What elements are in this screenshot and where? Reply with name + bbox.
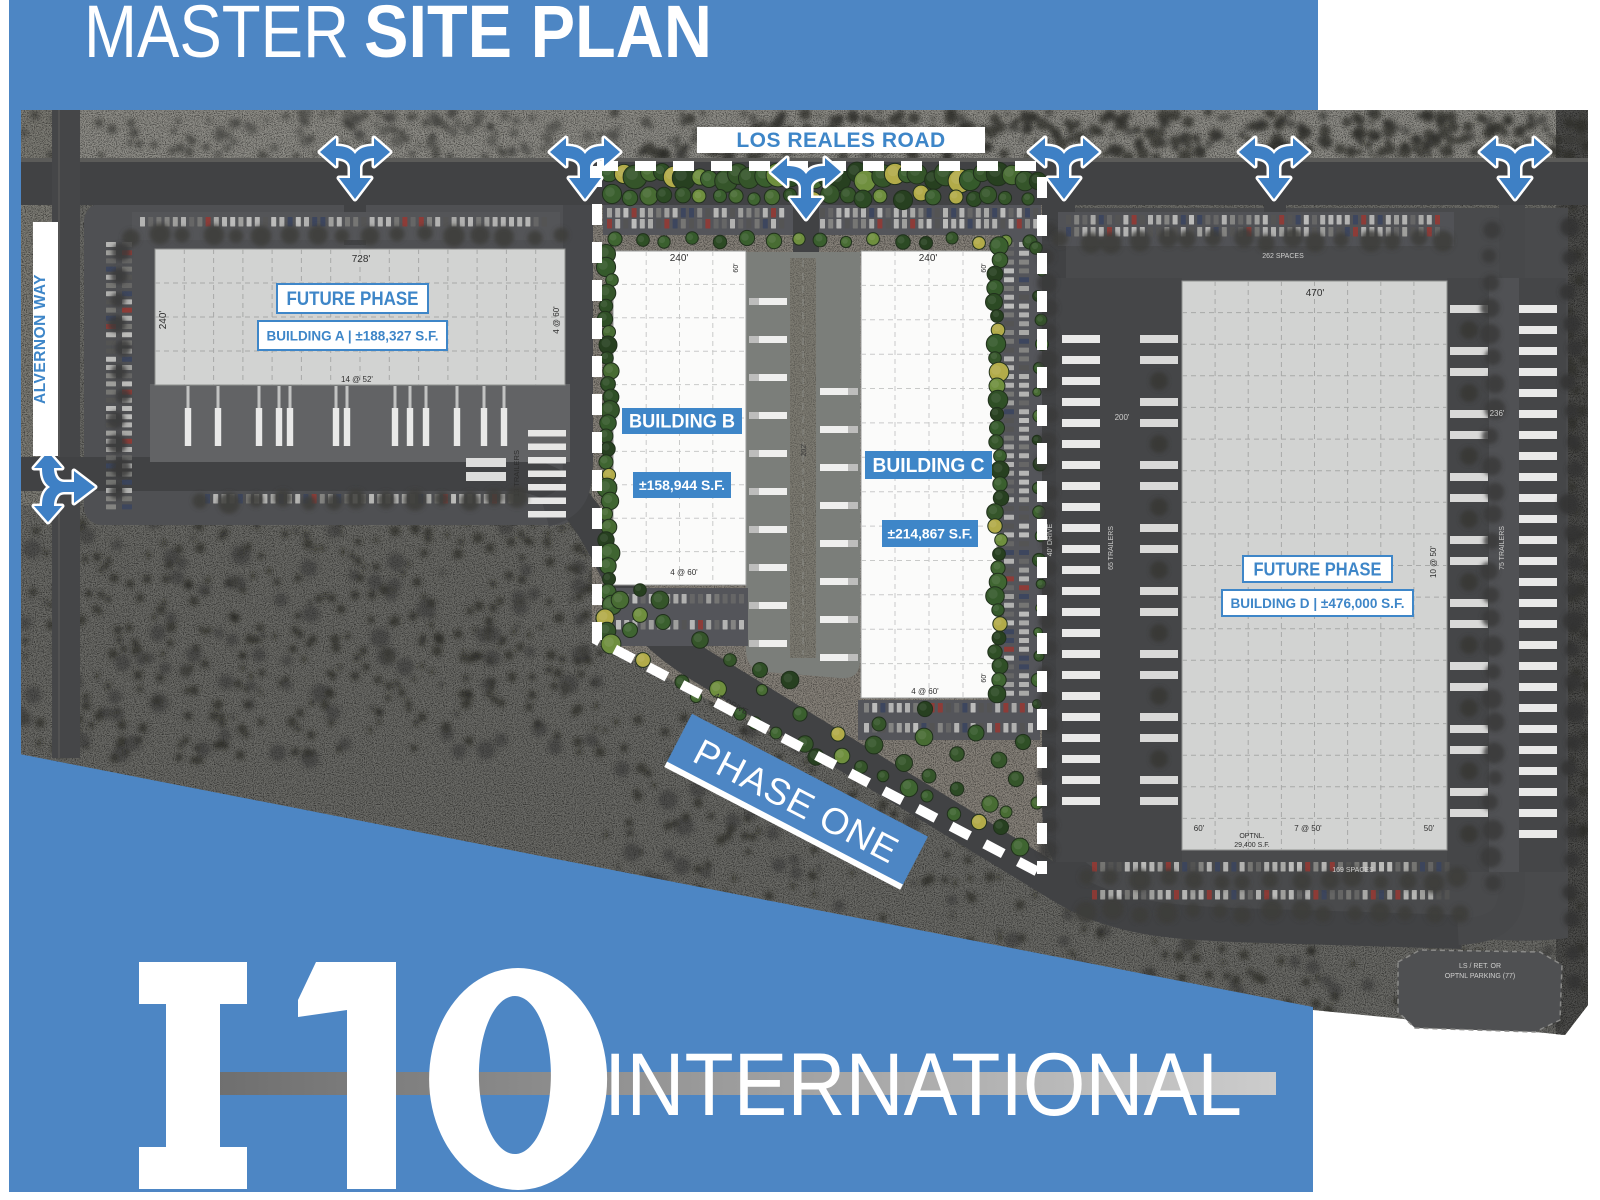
- svg-text:LS / RET. OR: LS / RET. OR: [1459, 963, 1501, 970]
- svg-text:65 TRAILERS: 65 TRAILERS: [1108, 526, 1115, 570]
- svg-text:10 @ 50': 10 @ 50': [1429, 546, 1438, 578]
- svg-text:LOS REALES ROAD: LOS REALES ROAD: [736, 129, 945, 152]
- svg-text:OPTNL PARKING (77): OPTNL PARKING (77): [1445, 973, 1515, 980]
- svg-text:±158,944 S.F.: ±158,944 S.F.: [639, 477, 725, 493]
- svg-text:240': 240': [919, 253, 938, 264]
- svg-text:INTERNATIONAL: INTERNATIONAL: [604, 1034, 1242, 1134]
- svg-text:SITE PLAN: SITE PLAN: [364, 0, 712, 73]
- svg-text:470': 470': [1306, 288, 1325, 299]
- svg-text:60': 60': [981, 673, 988, 682]
- svg-text:14 @ 52': 14 @ 52': [341, 375, 373, 384]
- svg-text:FUTURE PHASE: FUTURE PHASE: [287, 289, 419, 310]
- svg-text:240': 240': [158, 311, 169, 330]
- svg-text:200': 200': [1115, 413, 1130, 422]
- svg-text:BUILDING C: BUILDING C: [873, 455, 985, 477]
- svg-text:262 SPACES: 262 SPACES: [1262, 253, 1304, 260]
- svg-text:60': 60': [1194, 824, 1205, 833]
- svg-text:202': 202': [801, 443, 808, 456]
- svg-text:FUTURE PHASE: FUTURE PHASE: [1254, 559, 1382, 579]
- svg-text:60': 60': [981, 263, 988, 272]
- svg-text:50': 50': [1424, 824, 1435, 833]
- svg-text:40' DRIVE: 40' DRIVE: [1047, 523, 1054, 556]
- svg-text:240': 240': [670, 253, 689, 264]
- svg-text:60': 60': [733, 263, 740, 272]
- svg-text:4 @ 60': 4 @ 60': [552, 306, 561, 334]
- svg-text:MASTER: MASTER: [84, 0, 349, 73]
- svg-text:BUILDING A | ±188,327 S.F.: BUILDING A | ±188,327 S.F.: [267, 327, 439, 343]
- svg-text:4 @ 60': 4 @ 60': [670, 568, 698, 577]
- svg-text:±214,867 S.F.: ±214,867 S.F.: [888, 525, 973, 541]
- svg-text:BUILDING D | ±476,000 S.F.: BUILDING D | ±476,000 S.F.: [1231, 595, 1405, 611]
- svg-text:236': 236': [1490, 409, 1505, 418]
- svg-text:ALVERNON WAY: ALVERNON WAY: [32, 274, 49, 404]
- svg-text:29,400 S.F.: 29,400 S.F.: [1234, 842, 1269, 849]
- svg-text:7 @ 50': 7 @ 50': [1294, 824, 1322, 833]
- svg-text:169 SPACES: 169 SPACES: [1332, 867, 1374, 874]
- svg-text:BUILDING B: BUILDING B: [629, 412, 735, 433]
- svg-text:75 TRAILERS: 75 TRAILERS: [1499, 526, 1506, 570]
- svg-text:OPTNL.: OPTNL.: [1239, 833, 1264, 840]
- svg-text:728': 728': [352, 254, 371, 265]
- svg-text:4 @ 60': 4 @ 60': [911, 687, 939, 696]
